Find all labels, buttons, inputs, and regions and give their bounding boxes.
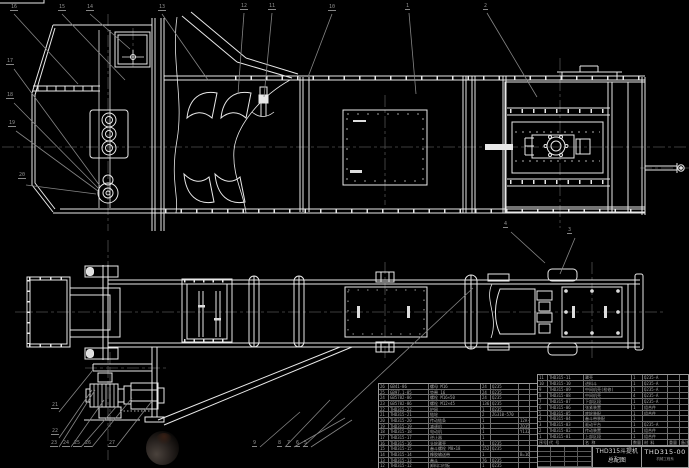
table-cell: THD315-16 (389, 441, 429, 446)
bucket-bolt-detail (252, 87, 274, 117)
head-section (32, 18, 164, 231)
table-cell: Q235 (491, 441, 519, 446)
table-cell (680, 375, 689, 380)
table-cell: THD315-19 (389, 424, 429, 429)
table-cell (643, 416, 668, 421)
table-cell: 8 (538, 393, 548, 398)
table-cell (519, 401, 530, 406)
table-cell: 1 (632, 411, 643, 416)
table-cell: 17 (379, 435, 389, 440)
balloon-callout: 12 (240, 3, 248, 10)
balloon-callout: 5 (303, 440, 308, 447)
parts-table-assemblies: 11THD315-11罩壳1Q235-A10THD315-10进料斗1Q235-… (537, 374, 689, 446)
table-cell: 重量 (668, 440, 680, 445)
table-cell: 1 (481, 407, 491, 412)
balloon-callout: 4 (503, 221, 508, 228)
signature-grid (538, 447, 593, 467)
table-cell (680, 387, 689, 392)
table-cell (519, 407, 530, 412)
balloon-callout: 3 (567, 227, 572, 234)
table-cell (680, 381, 689, 386)
table-cell (668, 428, 680, 433)
table-cell: Q235-A (643, 381, 668, 386)
table-cell: Q235 (491, 458, 519, 463)
table-cell (668, 411, 680, 416)
table-cell: 畚斗螺栓 M8×18 (429, 446, 481, 451)
table-cell: THD315-21 (389, 412, 429, 417)
table-cell: 底轮装配 (584, 411, 632, 416)
table-cell: 罩壳 (584, 375, 632, 380)
table-cell: 组合件 (643, 428, 668, 433)
table-cell: 1 (632, 422, 643, 427)
chute-opening-plan (182, 279, 232, 342)
watermark-smudge (146, 431, 179, 465)
product-name: THD315斗提机 (593, 447, 642, 456)
table-cell: 3 (538, 422, 548, 427)
table-cell (680, 393, 689, 398)
table-cell: 电动机 (429, 429, 481, 434)
table-cell (668, 375, 680, 380)
tail-takeup-section (485, 66, 684, 215)
table-cell (519, 390, 530, 395)
balloon-callout: 26 (84, 440, 92, 447)
cad-drawing-canvas: 1615141312111012171819202122232425262798… (0, 0, 689, 468)
table-cell: THD315-09 (548, 387, 584, 392)
table-cell: 1 (632, 428, 643, 433)
table-cell (668, 381, 680, 386)
table-cell: 19 (379, 424, 389, 429)
table-cell: 畚斗带装配 (584, 416, 632, 421)
table-cell (680, 428, 689, 433)
table-cell: 24 (481, 395, 491, 400)
drawing-number-cell: THD315-00 机械工程系 (642, 447, 688, 467)
support-leg-and-braces (145, 347, 352, 425)
table-cell (668, 393, 680, 398)
table-cell: ZG310-570 (491, 412, 519, 417)
table-cell: THD315-03 (548, 422, 584, 427)
balloon-callout: 15 (58, 4, 66, 11)
table-cell: THD315-05 (548, 411, 584, 416)
table-cell: 25 (379, 390, 389, 395)
parts-table-standard: 26GB41-86螺母 M1624Q23525GB97.1-85垫圈 1624Q… (378, 383, 538, 468)
table-cell (668, 434, 680, 439)
table-cell: THD315-06 (548, 405, 584, 410)
table-cell (519, 395, 530, 400)
table-cell (519, 446, 530, 451)
table-cell: THD315-01 (548, 434, 584, 439)
balloon-callout: 23 (50, 440, 58, 447)
table-cell (680, 416, 689, 421)
table-cell: 组合件 (643, 411, 668, 416)
title-block: THD315斗提机 总配图 THD315-00 机械工程系 (537, 446, 689, 468)
balloon-callout: 11 (268, 3, 276, 10)
table-cell: 名 称 (584, 440, 632, 445)
table-cell (519, 412, 530, 417)
casing-trunk (53, 76, 645, 213)
table-cell: GB5782-86 (389, 401, 429, 406)
table-cell (491, 418, 519, 423)
table-cell: 卸料口衬板 (429, 463, 481, 468)
table-cell: 驱动平台 (584, 422, 632, 427)
table-cell (668, 387, 680, 392)
table-cell: 畚斗 (429, 458, 481, 463)
table-cell: 1 (481, 418, 491, 423)
table-cell: 组合件 (643, 405, 668, 410)
table-cell (668, 422, 680, 427)
table-cell: 4 (632, 393, 643, 398)
table-cell: 1 (632, 387, 643, 392)
drawing-number: THD315-00 (642, 447, 688, 457)
table-cell: 11 (538, 375, 548, 380)
table-cell: 6 (538, 405, 548, 410)
table-cell (491, 429, 519, 434)
table-cell: THD315-20 (389, 418, 429, 423)
table-cell (519, 458, 530, 463)
table-cell (491, 452, 519, 457)
table-cell: 5 (538, 411, 548, 416)
table-cell: 1 (481, 452, 491, 457)
organization-name: 机械工程系 (642, 457, 688, 462)
table-cell: 76 (481, 458, 491, 463)
table-cell: 张紧装置 (584, 405, 632, 410)
table-cell: Q235 (491, 463, 519, 468)
drawing-title-cell: THD315斗提机 总配图 (593, 447, 643, 467)
table-cell (519, 384, 530, 389)
table-cell: 18 (379, 429, 389, 434)
table-cell (519, 463, 530, 468)
table-cell: 20 (379, 418, 389, 423)
balloon-callout: 25 (73, 440, 81, 447)
table-cell (680, 399, 689, 404)
table-cell: 13 (379, 458, 389, 463)
table-cell: 1 (481, 441, 491, 446)
table-cell: Q235-A (643, 399, 668, 404)
table-cell (680, 434, 689, 439)
table-cell: 进料斗 (584, 381, 632, 386)
table-cell: Q235 (491, 407, 519, 412)
table-cell (519, 435, 530, 440)
table-cell: THD315-02 (548, 428, 584, 433)
table-cell: 传动装置 (584, 428, 632, 433)
table-cell: 逆止器 (429, 435, 481, 440)
table-row: 12THD315-12卸料口衬板1Q235 (379, 463, 537, 468)
table-cell: 减速机 (429, 424, 481, 429)
table-cell: 12 (379, 463, 389, 468)
balloon-callout: 20 (18, 172, 26, 179)
table-cell: Q235 (491, 401, 519, 406)
table-cell: 23 (379, 401, 389, 406)
table-cell: THD315-13 (389, 458, 429, 463)
table-cell (491, 424, 519, 429)
table-cell: 152 (481, 446, 491, 451)
table-cell: THD315-22 (389, 407, 429, 412)
table-cell: 序号 (538, 440, 548, 445)
balloon-callout: 24 (62, 440, 70, 447)
table-cell: 7 (538, 399, 548, 404)
table-cell: 1 (632, 399, 643, 404)
table-cell: 代 号 (548, 440, 584, 445)
table-cell: 1 (632, 434, 643, 439)
table-cell: 24 (379, 395, 389, 400)
balloon-callout: 27 (108, 440, 116, 447)
table-cell: 上部区段 (584, 434, 632, 439)
balloon-callout: 8 (277, 440, 282, 447)
table-cell (668, 399, 680, 404)
table-row: 序号代 号名 称数量材 料重量备注 (538, 440, 688, 445)
table-cell: Q235 (491, 384, 519, 389)
table-cell: 螺栓 M16×50 (429, 395, 481, 400)
table-cell: 10 (538, 381, 548, 386)
table-cell: 护网 (429, 407, 481, 412)
table-cell: 中间机壳 (584, 393, 632, 398)
table-cell: 1 (481, 424, 491, 429)
balloon-callout: 1 (405, 3, 410, 10)
table-cell: 4 (538, 416, 548, 421)
table-cell: 2 (481, 412, 491, 417)
top-view (32, 12, 684, 231)
table-cell: 1 (632, 405, 643, 410)
table-cell: 1 (481, 463, 491, 468)
balloon-callout: 16 (10, 4, 18, 11)
table-cell: THD315-18 (389, 429, 429, 434)
balloon-callout: 2 (483, 3, 488, 10)
table-cell: GB97.1-85 (389, 390, 429, 395)
table-cell: 数量 (632, 440, 643, 445)
balloon-callout: 14 (86, 4, 94, 11)
discharge-head-plan (27, 265, 120, 360)
table-cell: 传动链条 (429, 418, 481, 423)
table-cell: 下部区段 (584, 399, 632, 404)
table-cell: 22 (379, 407, 389, 412)
table-cell: THD315-12 (389, 463, 429, 468)
table-cell: 12A-1 (519, 418, 530, 423)
boot-section-plan (488, 269, 643, 355)
table-cell: 1 (632, 381, 643, 386)
table-cell: Q235 (491, 395, 519, 400)
table-cell: 16 (379, 441, 389, 446)
table-cell: THD315-15 (389, 446, 429, 451)
table-cell: GB41-86 (389, 384, 429, 389)
balloon-callout: 13 (158, 4, 166, 11)
sheet-title: 总配图 (593, 456, 642, 465)
table-cell: 136 (481, 401, 491, 406)
table-cell: THD315-10 (548, 381, 584, 386)
balloon-callout: 10 (328, 4, 336, 11)
table-cell: THD315-04 (548, 416, 584, 421)
table-cell: 9 (538, 387, 548, 392)
table-cell (668, 416, 680, 421)
table-cell: 螺栓 M12×45 (429, 401, 481, 406)
table-cell (519, 441, 530, 446)
table-cell: THD315-07 (548, 399, 584, 404)
table-cell: 1 (632, 416, 643, 421)
balloon-callout: 22 (51, 428, 59, 435)
table-cell: 14 (379, 452, 389, 457)
table-cell: 24 (481, 390, 491, 395)
table-cell: 26 (379, 384, 389, 389)
table-cell: GB5782-86 (389, 395, 429, 400)
balloon-callout: 6 (295, 440, 300, 447)
table-cell: Q235 (491, 390, 519, 395)
table-cell: 备注 (680, 440, 689, 445)
table-cell: 垫圈 16 (429, 390, 481, 395)
table-cell: Q235-A (643, 422, 668, 427)
table-cell: 头轮罩壳 (429, 441, 481, 446)
balloon-callout: 18 (6, 92, 14, 99)
table-cell: 2 (538, 428, 548, 433)
balloon-callout: 9 (252, 440, 257, 447)
table-cell (680, 422, 689, 427)
table-cell: 21 (379, 412, 389, 417)
table-cell (680, 411, 689, 416)
balloon-callout: 19 (8, 120, 16, 127)
table-cell: THD315-11 (548, 375, 584, 380)
table-cell: 1 (632, 375, 643, 380)
table-cell: 1 (481, 435, 491, 440)
table-cell: Q235-A (643, 393, 668, 398)
balloon-callout: 21 (51, 402, 59, 409)
table-cell: B=160 (519, 452, 530, 457)
table-cell: 组合件 (643, 434, 668, 439)
table-cell: 链轮 (429, 412, 481, 417)
table-cell: Q235 (491, 446, 519, 451)
table-cell: 1 (538, 434, 548, 439)
balloon-callout: 17 (6, 58, 14, 65)
table-cell: 15 (379, 446, 389, 451)
table-cell: 中间机壳(检修) (584, 387, 632, 392)
table-cell: Q235-A (643, 387, 668, 392)
table-cell (680, 405, 689, 410)
table-cell: ZQ350-2 (519, 424, 530, 429)
table-cell: THD315-08 (548, 393, 584, 398)
table-cell: 1 (481, 429, 491, 434)
table-cell (491, 435, 519, 440)
table-cell: 螺母 M16 (429, 384, 481, 389)
table-cell: 材 料 (643, 440, 668, 445)
table-cell: THD315-17 (389, 435, 429, 440)
table-cell: 橡胶输送带 (429, 452, 481, 457)
table-cell (668, 405, 680, 410)
table-cell: Y132M-4 (519, 429, 530, 434)
balloon-callout: 7 (286, 440, 291, 447)
table-cell: 24 (481, 384, 491, 389)
table-cell: Q235-A (643, 375, 668, 380)
sheet-border-corner (0, 0, 44, 3)
table-cell: THD315-14 (389, 452, 429, 457)
